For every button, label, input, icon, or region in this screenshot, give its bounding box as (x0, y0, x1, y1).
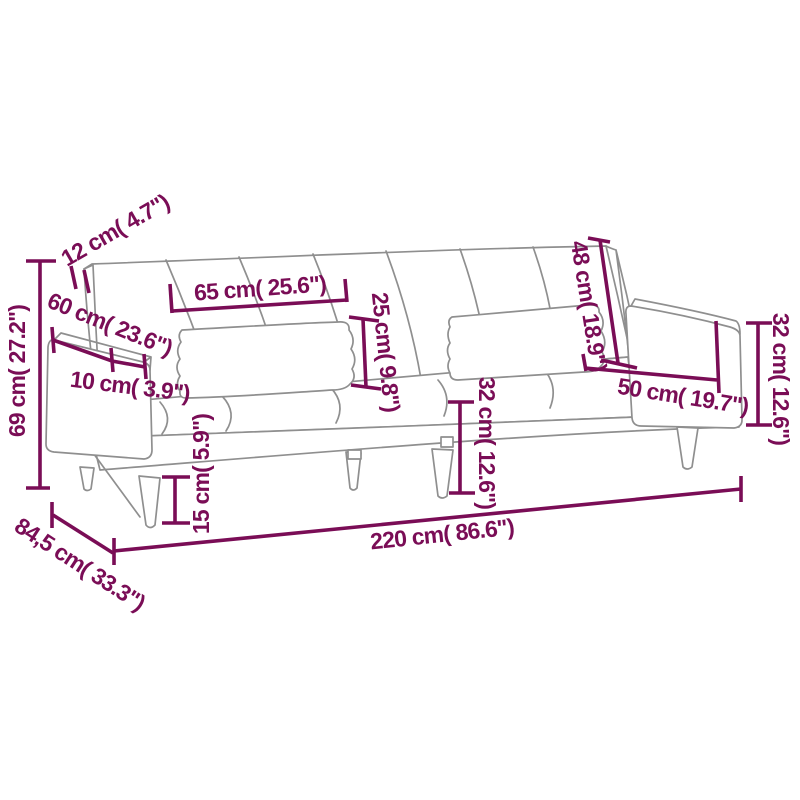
dimension-line-leg-height (162, 477, 190, 523)
label-seat-height: 32 cm( 12.6") (474, 377, 500, 509)
label-leg-height: 15 cm( 5.9") (188, 414, 214, 534)
sofa-latch-tab (441, 437, 453, 447)
sofa-latch-tab (348, 450, 361, 459)
sofa-leg (677, 427, 698, 469)
label-total-height: 69 cm( 27.2") (4, 305, 30, 437)
label-backrest-thickness: 12 cm( 4.7") (56, 189, 173, 272)
sofa-leg (139, 476, 160, 528)
sofa-left-bolster (177, 322, 355, 398)
sofa-leg (80, 467, 94, 491)
sofa-dimension-diagram: 12 cm( 4.7") 65 cm( 25.6") 25 cm( 9.8") … (0, 0, 800, 800)
label-armrest-height: 32 cm( 12.6") (768, 313, 794, 445)
diagram-canvas: 12 cm( 4.7") 65 cm( 25.6") 25 cm( 9.8") … (0, 0, 800, 800)
label-total-depth: 84,5 cm( 33.3") (10, 512, 150, 615)
sofa-leg (432, 449, 453, 498)
